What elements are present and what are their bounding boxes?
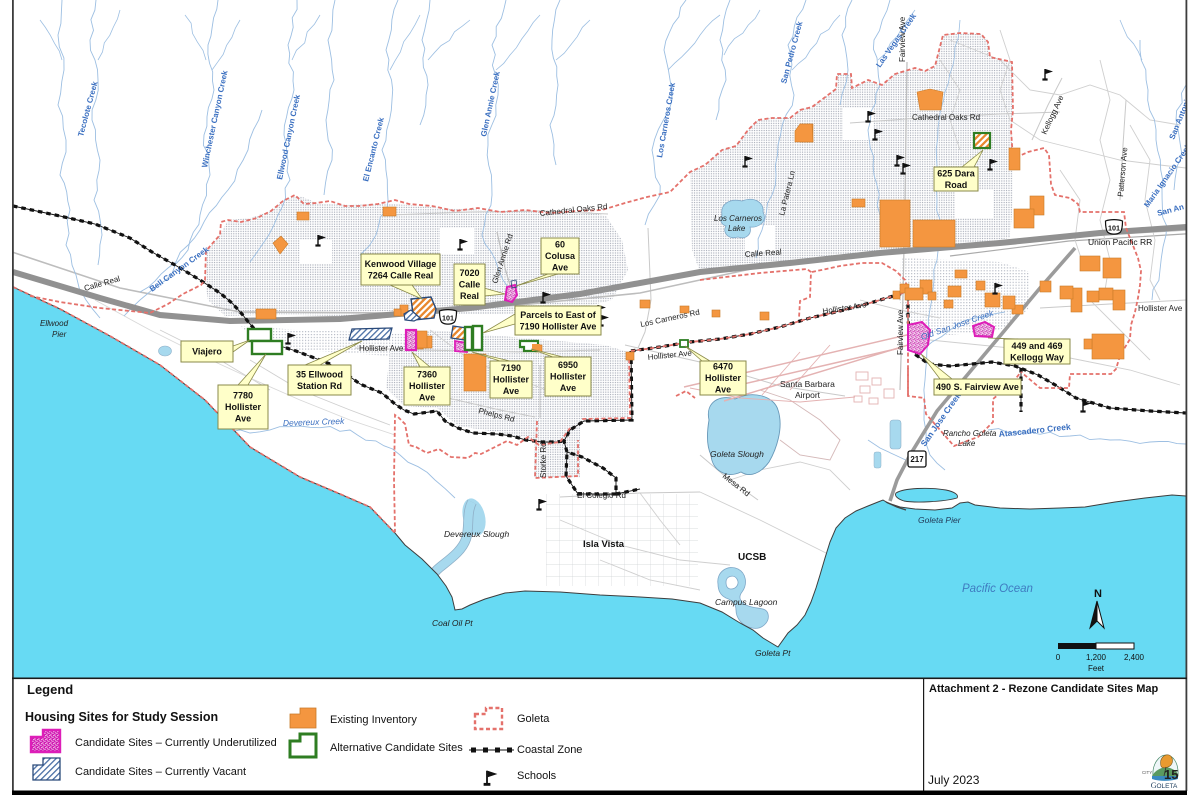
svg-text:Ave: Ave [715, 385, 731, 395]
svg-text:Santa Barbara: Santa Barbara [780, 379, 835, 389]
svg-text:6950: 6950 [558, 360, 578, 370]
svg-text:Pacific Ocean: Pacific Ocean [962, 583, 1033, 595]
svg-text:Viajero: Viajero [192, 347, 222, 357]
svg-text:Rancho Goleta: Rancho Goleta [943, 429, 997, 438]
svg-text:Hollister: Hollister [225, 402, 262, 412]
svg-text:Station Rd: Station Rd [297, 381, 342, 391]
svg-text:Pier: Pier [52, 330, 67, 339]
svg-text:Hollister Ave: Hollister Ave [359, 344, 404, 353]
svg-text:Road: Road [945, 180, 968, 190]
svg-text:Goleta Slough: Goleta Slough [710, 449, 764, 459]
svg-text:Fairview Ave: Fairview Ave [896, 309, 905, 355]
svg-text:15: 15 [1164, 767, 1178, 782]
svg-text:Real: Real [460, 291, 479, 301]
svg-text:Candidate Sites – Currently Va: Candidate Sites – Currently Vacant [75, 766, 246, 778]
svg-text:7020: 7020 [459, 268, 479, 278]
svg-text:Devereux Slough: Devereux Slough [444, 529, 509, 539]
svg-text:Existing Inventory: Existing Inventory [330, 714, 417, 726]
svg-text:GOLETA: GOLETA [1151, 781, 1178, 790]
svg-text:Schools: Schools [517, 770, 557, 782]
svg-text:Ellwood: Ellwood [40, 319, 69, 328]
svg-text:7190 Hollister Ave: 7190 Hollister Ave [520, 321, 597, 331]
svg-text:Hollister: Hollister [409, 381, 446, 391]
svg-text:Union Pacific RR: Union Pacific RR [1088, 237, 1152, 247]
svg-text:Storke Rd: Storke Rd [539, 442, 548, 478]
svg-text:Candidate Sites – Currently Un: Candidate Sites – Currently Underutilize… [75, 737, 277, 749]
svg-text:Kellogg Way: Kellogg Way [1010, 352, 1064, 362]
svg-text:Ave: Ave [419, 393, 435, 403]
svg-text:Parcels to East of: Parcels to East of [520, 310, 597, 320]
svg-text:625 Dara: 625 Dara [937, 168, 976, 178]
svg-text:Attachment 2 - Rezone Candidat: Attachment 2 - Rezone Candidate Sites Ma… [929, 683, 1158, 695]
svg-text:Ave: Ave [235, 414, 251, 424]
svg-text:6470: 6470 [713, 362, 733, 372]
svg-text:Goleta Pt: Goleta Pt [755, 648, 791, 658]
svg-text:7360: 7360 [417, 370, 437, 380]
svg-text:7190: 7190 [501, 363, 521, 373]
svg-text:Kenwood Village: Kenwood Village [365, 259, 437, 269]
svg-text:35 Ellwood: 35 Ellwood [296, 369, 343, 379]
svg-text:Hollister: Hollister [705, 373, 742, 383]
svg-text:Calle: Calle [459, 280, 481, 290]
svg-text:0: 0 [1056, 653, 1061, 662]
svg-text:Cathedral Oaks Rd: Cathedral Oaks Rd [912, 113, 980, 122]
svg-text:Hollister: Hollister [550, 372, 587, 382]
svg-text:101: 101 [1108, 224, 1120, 233]
svg-text:Ave: Ave [560, 383, 576, 393]
svg-text:7264 Calle Real: 7264 Calle Real [368, 270, 434, 280]
svg-text:Goleta: Goleta [517, 713, 550, 725]
svg-text:Alternative Candidate Sites: Alternative Candidate Sites [330, 742, 463, 754]
svg-text:490 S. Fairview Ave: 490 S. Fairview Ave [936, 382, 1019, 392]
svg-text:101: 101 [442, 314, 454, 323]
svg-text:Ave: Ave [552, 263, 568, 273]
svg-text:Hollister: Hollister [493, 375, 530, 385]
svg-text:Isla Vista: Isla Vista [583, 539, 625, 550]
svg-text:Coal Oil Pt: Coal Oil Pt [432, 618, 473, 628]
svg-text:449 and 469: 449 and 469 [1011, 341, 1062, 351]
svg-text:July 2023: July 2023 [928, 773, 980, 787]
svg-text:Colusa: Colusa [545, 251, 576, 261]
svg-text:2,400: 2,400 [1124, 653, 1145, 662]
svg-text:Feet: Feet [1088, 664, 1105, 673]
svg-text:UCSB: UCSB [738, 552, 766, 563]
svg-text:1,200: 1,200 [1086, 653, 1107, 662]
svg-text:Los Carneros: Los Carneros [714, 214, 762, 223]
svg-text:Goleta Pier: Goleta Pier [918, 515, 962, 525]
svg-text:Lake: Lake [728, 224, 746, 233]
svg-text:Housing Sites for Study Sessio: Housing Sites for Study Session [25, 710, 218, 724]
svg-text:El Colegio Rd: El Colegio Rd [577, 491, 626, 500]
svg-text:Airport: Airport [795, 390, 821, 400]
svg-text:217: 217 [910, 455, 924, 464]
svg-text:CITY: CITY [1142, 770, 1152, 775]
svg-text:Hollister Ave: Hollister Ave [1138, 304, 1183, 313]
svg-text:N: N [1094, 588, 1102, 600]
svg-text:Legend: Legend [27, 682, 73, 697]
svg-text:60: 60 [555, 240, 565, 250]
svg-text:Campus Lagoon: Campus Lagoon [715, 597, 778, 607]
svg-text:Lake: Lake [958, 439, 976, 448]
svg-text:7780: 7780 [233, 391, 253, 401]
svg-text:Fairview Ave: Fairview Ave [898, 16, 907, 62]
svg-text:Ave: Ave [503, 386, 519, 396]
svg-text:Coastal Zone: Coastal Zone [517, 744, 582, 756]
